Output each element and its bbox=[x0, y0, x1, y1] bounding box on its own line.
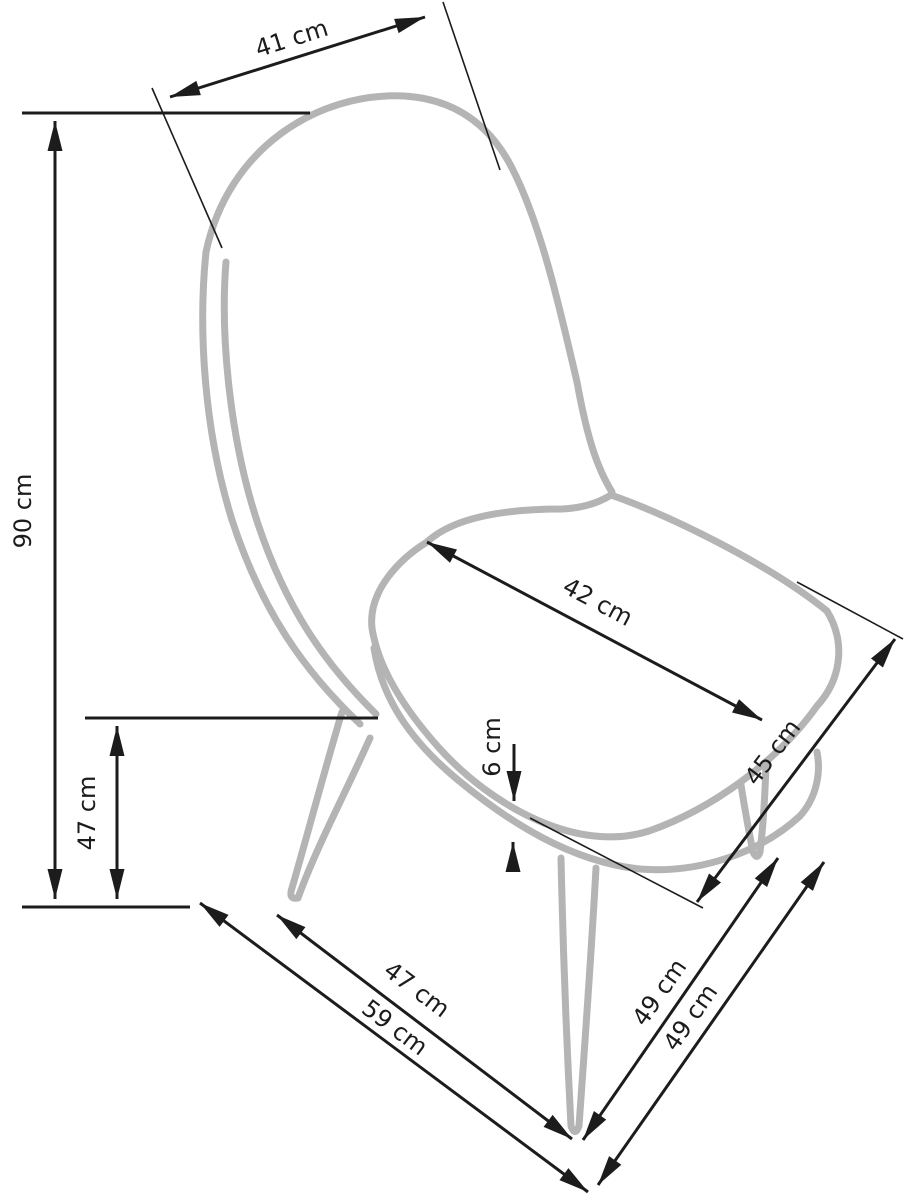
dim-leg-span-outer-line bbox=[598, 862, 824, 1185]
dim-cushion-thickness-label: 6 cm bbox=[478, 717, 506, 776]
rear-left-leg bbox=[291, 712, 370, 898]
backrest-outline bbox=[206, 96, 612, 492]
dim-floor-depth-line bbox=[200, 903, 588, 1192]
front-leg bbox=[561, 858, 596, 1132]
backrest-width-ext-right bbox=[443, 2, 500, 170]
dim-leg-span-inner-line bbox=[583, 858, 778, 1140]
dim-floor-span-line bbox=[277, 915, 572, 1139]
diagram-canvas: 41 cm 90 cm 47 cm 42 cm 6 cm 45 cm 47 cm… bbox=[0, 0, 906, 1200]
backrest-left-inner-edge bbox=[224, 262, 376, 714]
dim-overall-height-label: 90 cm bbox=[9, 474, 37, 549]
dim-backrest-width-label: 41 cm bbox=[252, 14, 332, 63]
dim-seat-height-label: 47 cm bbox=[73, 776, 101, 851]
chair-dimension-diagram: 41 cm 90 cm 47 cm 42 cm 6 cm 45 cm 47 cm… bbox=[0, 0, 906, 1200]
seat-outline bbox=[372, 495, 839, 837]
